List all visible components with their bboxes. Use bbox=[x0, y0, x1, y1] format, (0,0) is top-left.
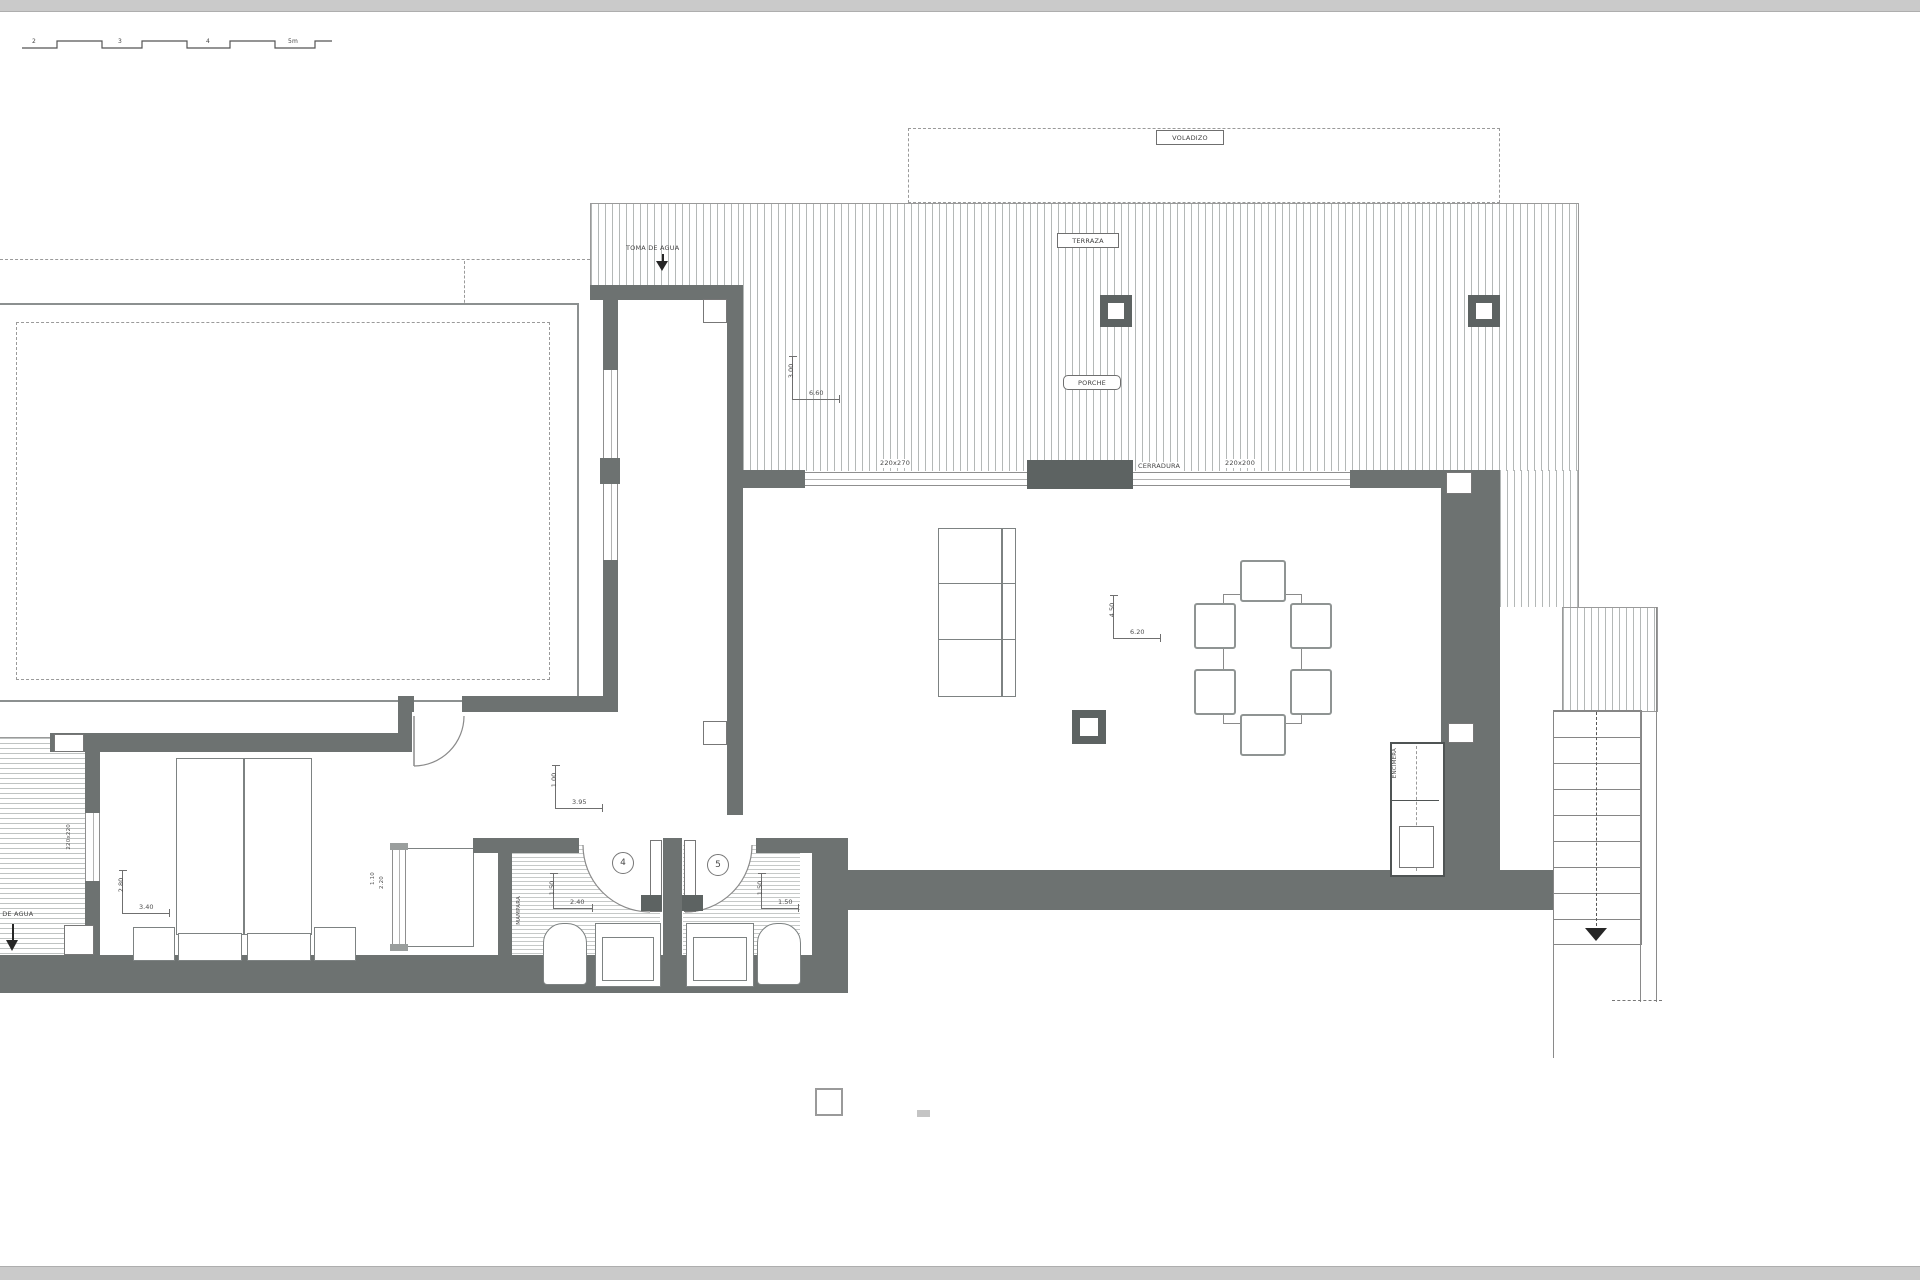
sofa-back-3 bbox=[1002, 639, 1016, 697]
corridor-left-wall-a bbox=[603, 285, 618, 370]
bath4-toilet bbox=[543, 923, 587, 985]
nightstand-right bbox=[314, 927, 356, 961]
window-220x220-label: 220x220 bbox=[66, 824, 72, 850]
floor-plan: 2 3 4 5m MOTORES VOLADIZO TERRAZA PORCHE… bbox=[0, 0, 1920, 1280]
dim-bedroom-vertical: 2.80 bbox=[117, 872, 125, 898]
detached-square-mark bbox=[815, 1088, 843, 1116]
wardrobe bbox=[400, 848, 474, 947]
sofa-seat-3 bbox=[938, 639, 1002, 697]
bath-top-wall-left bbox=[473, 838, 579, 853]
glass-partition-cap-bottom bbox=[390, 944, 408, 951]
living-top-window-2 bbox=[1133, 472, 1350, 486]
pool-inner-dashed bbox=[16, 322, 550, 680]
right-wall-pillar-mid bbox=[1448, 723, 1474, 743]
corridor-left-window-1 bbox=[603, 370, 618, 458]
kitchen-unit-divider bbox=[1392, 800, 1439, 801]
dim-bedroom-horizontal: 3.40 bbox=[139, 903, 153, 911]
corridor-pillar-top bbox=[703, 299, 727, 323]
living-top-wall-left bbox=[743, 470, 805, 488]
page-top-edge bbox=[0, 0, 1920, 12]
dim-bath5-vertical: 1.50 bbox=[756, 875, 764, 901]
stairs-left-rail-ext bbox=[1553, 943, 1554, 1058]
wing-upper-wall bbox=[462, 696, 618, 712]
corridor-left-wall-pier bbox=[600, 458, 620, 484]
mampara-label: MAMPARA bbox=[516, 896, 522, 925]
bath5-door-stop bbox=[682, 895, 703, 911]
wing-corner-pillar bbox=[64, 925, 94, 955]
bath4-room-number: 4 bbox=[612, 852, 634, 874]
stairs-right-rail-1 bbox=[1640, 710, 1641, 1002]
sofa-back-1 bbox=[1002, 528, 1016, 586]
stairs bbox=[1553, 710, 1642, 945]
kitchen-unit bbox=[1390, 742, 1445, 877]
dim-hall-horizontal: 3.95 bbox=[572, 798, 586, 806]
bath5-toilet bbox=[757, 923, 801, 985]
bed-mattress-left bbox=[176, 758, 244, 935]
corridor-left-window-2 bbox=[603, 484, 618, 560]
deck-hatch-stair-landing bbox=[1562, 607, 1658, 712]
dim-hall: 1.00 3.95 bbox=[555, 766, 602, 809]
corridor-pillar-bottom bbox=[703, 721, 727, 745]
dining-chair-right-2 bbox=[1290, 669, 1332, 715]
dim-bath5: 1.50 1.50 bbox=[761, 874, 798, 909]
living-top-wall-block bbox=[1027, 460, 1133, 489]
dim-bath4-horizontal: 2.40 bbox=[570, 898, 584, 906]
toma-de-agua-top-stem bbox=[662, 254, 664, 261]
bedroom-top-wall bbox=[50, 733, 410, 752]
bath5-sink bbox=[693, 937, 747, 981]
bath-center-wall bbox=[663, 838, 682, 993]
sofa-back-2 bbox=[1002, 583, 1016, 642]
page-bottom-edge bbox=[0, 1266, 1920, 1280]
dim-living-vertical: 4.50 bbox=[1108, 597, 1116, 623]
stairs-bottom-tick bbox=[1612, 1000, 1662, 1001]
bath5-room-number: 5 bbox=[707, 854, 729, 876]
bed-pillow-left bbox=[178, 933, 242, 961]
bedroom-top-pillar bbox=[54, 734, 84, 752]
porch-column-left bbox=[1100, 295, 1132, 327]
nightstand-left bbox=[133, 927, 175, 961]
corridor-right-wall bbox=[727, 285, 743, 815]
scalebar-tick-2: 2 bbox=[32, 37, 36, 46]
dim-porch: 3.00 6.60 bbox=[792, 357, 839, 400]
glass-partition-cap-top bbox=[390, 843, 408, 850]
dim-bedroom: 2.80 3.40 bbox=[122, 871, 169, 914]
scalebar-tick-3: 3 bbox=[118, 37, 122, 46]
bed-pillow-right bbox=[247, 933, 311, 961]
toma-de-agua-left-arrow-icon bbox=[6, 940, 18, 951]
window-220x200-label: 220x200 bbox=[1224, 459, 1256, 468]
terraza-label: TERRAZA bbox=[1057, 233, 1119, 248]
dining-chair-top bbox=[1240, 560, 1286, 602]
dim-living: 4.50 6.20 bbox=[1113, 596, 1160, 639]
pool-boundary-dashed-line bbox=[0, 259, 590, 260]
toma-de-agua-left-stem bbox=[12, 924, 14, 940]
bath-left-wall bbox=[498, 838, 512, 993]
sofa-seat-2 bbox=[938, 583, 1002, 642]
bath4-sink bbox=[602, 937, 654, 981]
kitchen-sink bbox=[1399, 826, 1434, 868]
scalebar-tick-4: 4 bbox=[206, 37, 210, 46]
bath4-door-stop bbox=[641, 895, 662, 911]
small-gray-mark bbox=[917, 1110, 930, 1117]
cerradura-label: CERRADURA bbox=[1137, 462, 1181, 471]
living-column bbox=[1072, 710, 1106, 744]
bedroom-left-window bbox=[85, 813, 100, 881]
stairs-right-rail-2 bbox=[1656, 607, 1657, 1002]
deck-hatch-right-strip bbox=[1500, 470, 1579, 607]
dim-porch-horizontal: 6.60 bbox=[809, 389, 823, 397]
scalebar-line bbox=[22, 41, 332, 48]
dining-chair-right-1 bbox=[1290, 603, 1332, 649]
living-bottom-wall bbox=[848, 870, 1553, 910]
dining-chair-left-2 bbox=[1194, 669, 1236, 715]
dining-chair-bottom bbox=[1240, 714, 1286, 756]
dining-chair-left-1 bbox=[1194, 603, 1236, 649]
living-top-window-1 bbox=[805, 472, 1027, 486]
hall-door-arc bbox=[414, 716, 464, 766]
window-220x270-label: 220x270 bbox=[879, 459, 911, 468]
bed-mattress-right bbox=[244, 758, 312, 935]
right-wall-pillar-top bbox=[1446, 472, 1472, 494]
dim-hall-vertical: 1.00 bbox=[550, 767, 558, 793]
corridor-left-wall-b bbox=[603, 560, 618, 700]
stairs-down-arrow-icon bbox=[1585, 928, 1607, 941]
glass-dim-1-label: 1.10 bbox=[370, 872, 376, 885]
dim-bath4-vertical: 1.50 bbox=[548, 875, 556, 901]
toma-de-agua-top-arrow-icon bbox=[656, 261, 668, 271]
bath-right-wall bbox=[812, 838, 848, 993]
stairs-centerline bbox=[1596, 712, 1597, 926]
porche-label: PORCHE bbox=[1063, 375, 1121, 390]
glass-dim-2-label: 2.20 bbox=[379, 876, 385, 889]
toma-de-agua-top-label: TOMA DE AGUA bbox=[626, 244, 679, 253]
porch-column-right bbox=[1468, 295, 1500, 327]
scalebar-tick-5m: 5m bbox=[288, 37, 298, 46]
deck-hatch-terrace bbox=[743, 203, 1579, 471]
dim-bath5-horizontal: 1.50 bbox=[778, 898, 792, 906]
dim-porch-vertical: 3.00 bbox=[787, 358, 795, 384]
dim-living-horizontal: 6.20 bbox=[1130, 628, 1144, 636]
bedroom-glass-partition bbox=[392, 848, 406, 945]
living-right-wall bbox=[1441, 470, 1500, 910]
dim-bath4: 1.50 2.40 bbox=[553, 874, 592, 909]
encimera-label: ENCIMERA bbox=[1392, 748, 1398, 778]
sofa-seat-1 bbox=[938, 528, 1002, 586]
toma-de-agua-left-label: TOMA DE AGUA bbox=[0, 910, 33, 919]
voladizo-label: VOLADIZO bbox=[1156, 130, 1224, 145]
